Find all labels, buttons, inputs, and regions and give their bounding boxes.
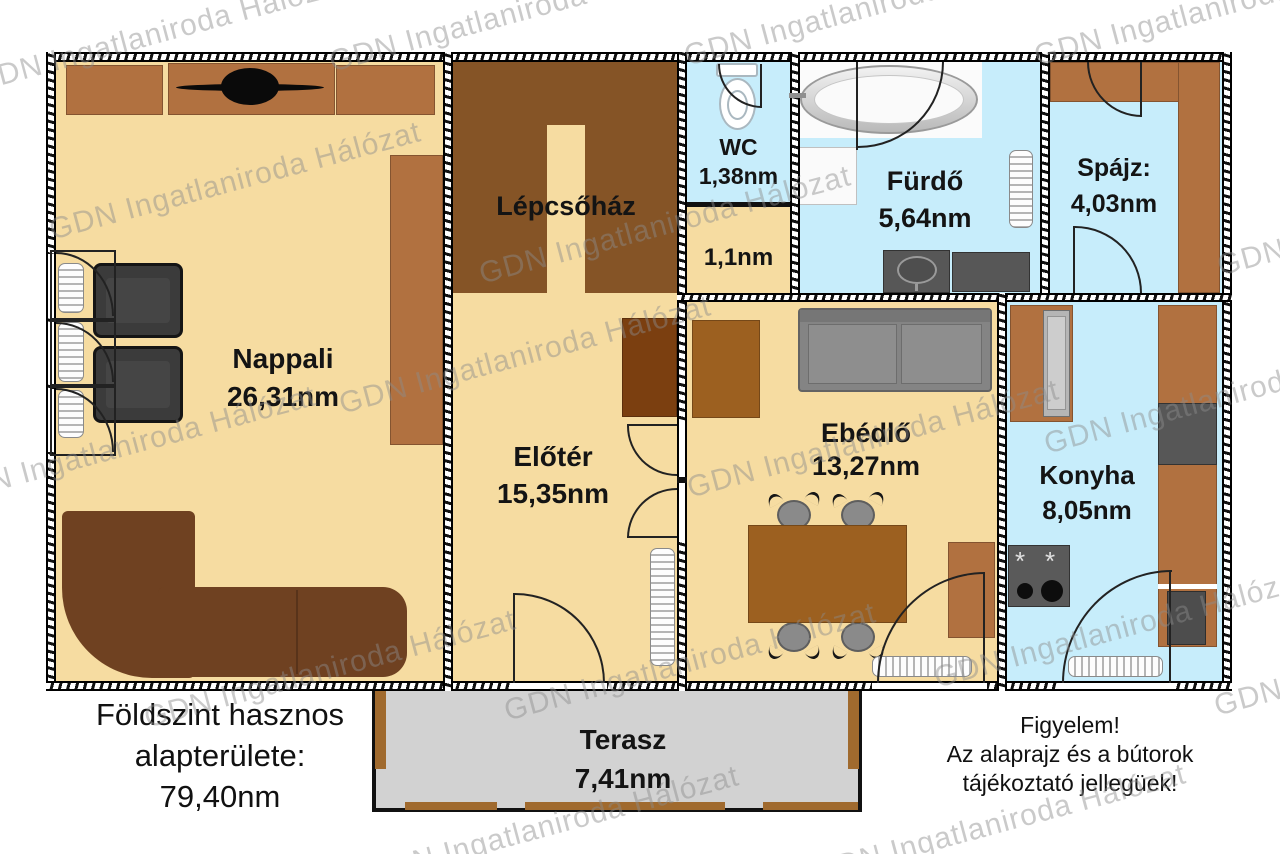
oven-icon <box>1167 591 1206 645</box>
bathtub-faucet-icon <box>789 93 806 98</box>
disclaimer-line: tájékoztató jellegüek! <box>925 769 1215 798</box>
door-leaf-konyha <box>1169 570 1171 683</box>
room-area: 5,64nm <box>810 200 1040 237</box>
area-note-line: alapterülete: <box>70 735 370 776</box>
double-door-leaf-lower <box>627 536 677 538</box>
wall-outer-right <box>1222 52 1232 691</box>
room-name: Előtér <box>442 438 664 475</box>
burner-circle-icon <box>1017 583 1033 599</box>
room-name: Nappali <box>180 340 386 378</box>
door-leaf-ebedlo <box>983 572 985 683</box>
label-nappali: Nappali 26,31nm <box>180 340 386 416</box>
wall-outer-bottom <box>46 681 1232 691</box>
dining-table <box>748 525 907 623</box>
label-wc: WC 1,38nm <box>687 133 790 191</box>
wall-nappali-eloter <box>443 52 453 691</box>
gray-sofa-cushion <box>901 324 982 384</box>
label-kamra: 1,1nm <box>687 243 790 272</box>
area-note-line: Földszint hasznos <box>70 694 370 735</box>
wall-center-lower <box>677 540 687 691</box>
terrace-rail-segment <box>405 802 497 810</box>
wall-outer-top <box>46 52 1232 62</box>
pantry-shelf-right <box>1178 62 1220 293</box>
tv-screen-icon <box>221 68 279 105</box>
room-area: 15,35nm <box>442 475 664 512</box>
radiator <box>650 548 675 666</box>
gray-sofa-cushion <box>808 324 897 384</box>
room-name: Terasz <box>510 720 736 759</box>
area-note: Földszint hasznos alapterülete: 79,40nm <box>70 694 370 817</box>
label-ebedlo: Ebédlő 13,27nm <box>760 417 972 483</box>
fridge-door <box>1047 316 1066 410</box>
wardrobe <box>390 155 443 445</box>
disclaimer-line: Az alaprajz és a bútorok <box>925 740 1215 769</box>
sofa-seam <box>296 590 298 674</box>
terrace-rail-segment <box>763 802 858 810</box>
label-terasz: Terasz 7,41nm <box>510 720 736 798</box>
corner-sofa-horizontal <box>158 587 407 677</box>
dining-cabinet-left <box>692 320 760 418</box>
sideboard-left <box>66 65 163 115</box>
label-furdo: Fürdő 5,64nm <box>810 163 1040 237</box>
burner-circle-icon <box>1041 580 1063 602</box>
stove-icon: * * <box>1008 545 1070 607</box>
label-eloter: Előtér 15,35nm <box>442 438 664 512</box>
door-leaf-spajz-top <box>1140 62 1142 117</box>
disclaimer-line: Figyelem! <box>925 711 1215 740</box>
fridge-icon <box>1043 310 1070 417</box>
wall-center-upper <box>677 52 687 424</box>
room-name: Lépcsőház <box>455 190 677 222</box>
area-note-line: 79,40nm <box>70 776 370 817</box>
washbasin-counter <box>883 250 950 293</box>
room-area: 1,38nm <box>687 162 790 191</box>
terrace-rail-segment <box>525 802 725 810</box>
wall-ebedlo-konyha <box>997 293 1007 691</box>
room-area: 13,27nm <box>760 450 972 483</box>
kitchen-sink <box>1158 403 1217 465</box>
burner-star-icon: * <box>1015 548 1025 574</box>
wall-wc-furdo <box>790 52 800 302</box>
door-leaf-wc <box>760 64 762 108</box>
label-lepcsohaz: Lépcsőház <box>455 190 677 222</box>
wall-bath-row <box>677 293 1232 302</box>
room-name: Spájz: <box>1050 150 1178 186</box>
double-door-leaf-upper <box>627 424 677 426</box>
gray-sofa <box>798 308 992 392</box>
doorway-mullion <box>677 477 687 483</box>
room-name: Konyha <box>1007 458 1167 493</box>
washbasin-sink-icon <box>897 256 937 284</box>
label-konyha: Konyha 8,05nm <box>1007 458 1167 528</box>
room-area: 26,31nm <box>180 378 386 416</box>
washbasin-tap-icon <box>915 284 918 291</box>
hall-cabinet <box>622 318 677 417</box>
wall-wc-kamra <box>687 202 790 207</box>
room-area: 4,03nm <box>1050 186 1178 222</box>
bath-counter <box>952 252 1030 292</box>
door-leaf-terasz <box>513 593 515 683</box>
room-area: 1,1nm <box>687 243 790 272</box>
burner-star-icon: * <box>1045 548 1055 574</box>
disclaimer-note: Figyelem! Az alaprajz és a bútorok tájék… <box>925 711 1215 798</box>
label-spajz: Spájz: 4,03nm <box>1050 150 1178 222</box>
room-name: WC <box>687 133 790 162</box>
door-leaf-spajz-bottom <box>1073 226 1075 293</box>
room-area: 7,41nm <box>510 759 736 798</box>
room-area: 8,05nm <box>1007 493 1167 528</box>
gray-sofa-back <box>800 310 990 322</box>
terrace-post-right <box>848 691 859 769</box>
wall-furdo-spajz <box>1040 52 1050 302</box>
terrace-post-left <box>375 691 386 769</box>
room-name: Fürdő <box>810 163 1040 200</box>
sideboard-right <box>336 65 435 115</box>
floor-plan: * * Nappali 26,31nm Lépcsőház Előtér 15,… <box>0 0 1280 854</box>
door-leaf-furdo <box>856 62 858 150</box>
dining-chair <box>777 622 811 652</box>
dining-chair <box>841 622 875 652</box>
room-name: Ebédlő <box>760 417 972 450</box>
